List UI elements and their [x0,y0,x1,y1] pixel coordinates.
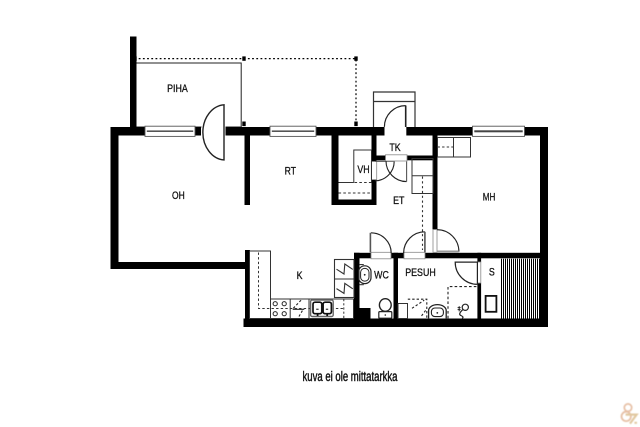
svg-text:WC: WC [374,270,389,282]
svg-text:K: K [297,270,303,282]
svg-text:VH: VH [357,164,369,176]
svg-text:OH: OH [172,190,185,202]
svg-text:ET: ET [393,195,405,207]
svg-text:PIHA: PIHA [167,83,188,95]
svg-text:S: S [489,267,495,279]
svg-text:kuva ei ole mittatarkka: kuva ei ole mittatarkka [303,369,398,385]
svg-text:PESUH: PESUH [405,267,436,279]
svg-text:TK: TK [389,142,401,154]
svg-text:RT: RT [285,166,297,178]
svg-text:MH: MH [483,191,496,203]
